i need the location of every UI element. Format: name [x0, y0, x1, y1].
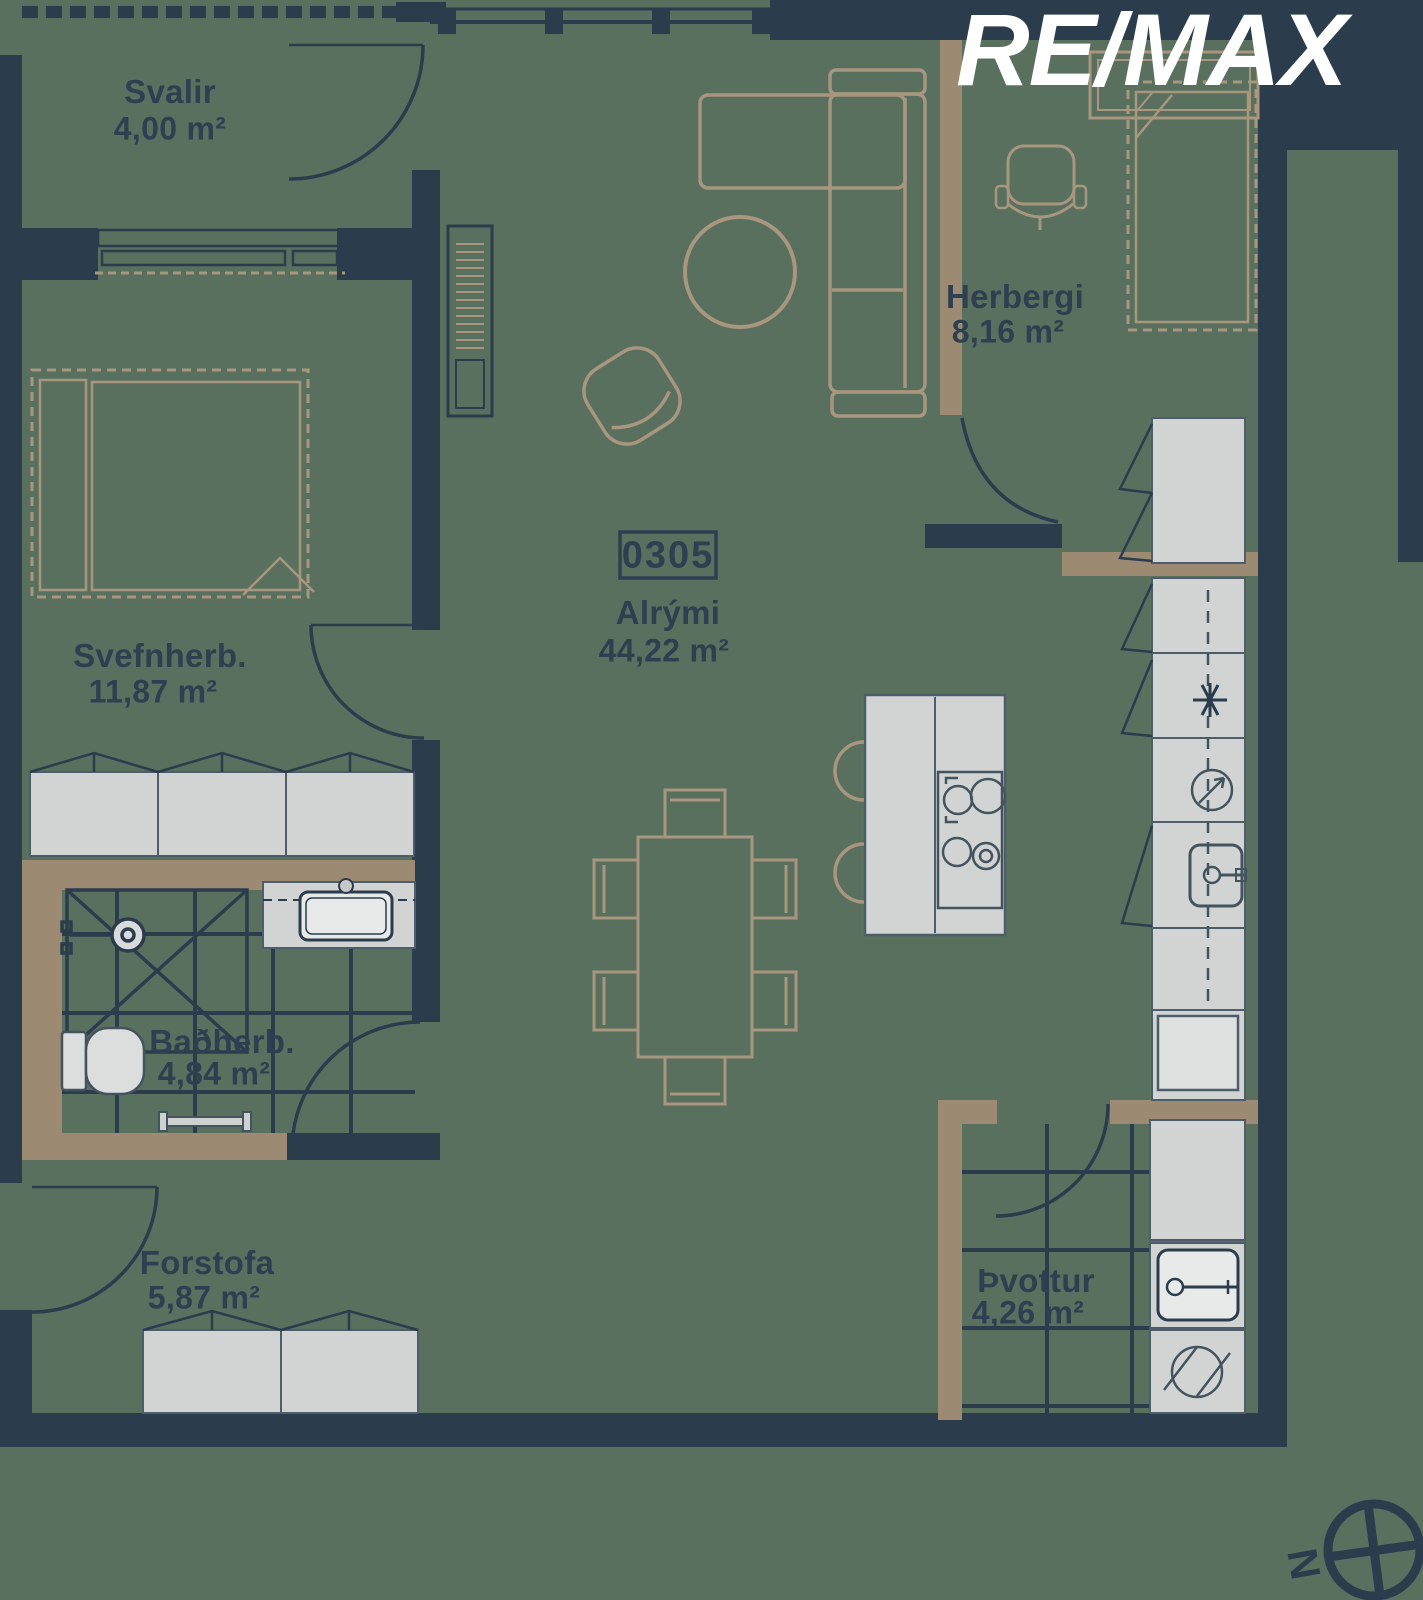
herbergi-door-arc [962, 418, 1058, 522]
room-area-forstofa: 5,87 m² [148, 1280, 260, 1317]
bedroom-wardrobe [30, 753, 414, 856]
right-inner-wall [1258, 40, 1287, 1447]
living-area [448, 70, 925, 1104]
towel-bar-icon [159, 1112, 251, 1131]
compass-north-label: N [1278, 1545, 1330, 1583]
room-label-svalir: Svalir [124, 73, 216, 111]
bottom-wall [22, 1413, 1287, 1447]
kitchen [835, 418, 1246, 1100]
dining-table-icon [594, 790, 796, 1104]
herbergi-stub-wall [925, 524, 1062, 548]
bedroom-living-wall [412, 170, 440, 630]
room-area-badherb: 4,84 m² [158, 1056, 270, 1093]
armchair-icon [574, 338, 690, 454]
left-wall [0, 55, 22, 1183]
bathroom-left-wall [22, 860, 62, 1160]
room-label-forstofa: Forstofa [140, 1244, 274, 1282]
room-label-svefnherb: Svefnherb. [73, 637, 247, 675]
room-area-thvottur: 4,26 m² [972, 1295, 1084, 1332]
bedroom-window [98, 230, 340, 246]
laundry-sink-icon [1150, 1243, 1245, 1328]
floor-plan-svg: N [0, 0, 1423, 1600]
faucet-icon [339, 879, 353, 893]
dishwasher-icon [1158, 1016, 1238, 1090]
room-area-alrymi: 44,22 m² [599, 633, 729, 670]
unit-number-label: 0305 [622, 535, 715, 578]
forstofa-room [143, 1311, 418, 1413]
coffee-table-icon [685, 217, 795, 327]
bathroom-door-arc [292, 1022, 420, 1150]
sink-icon [300, 892, 392, 940]
cabinet-door-swings [1120, 424, 1152, 926]
bathroom-vanity [263, 879, 415, 948]
bar-stools-icon [835, 742, 864, 902]
compass-icon: N [1278, 1504, 1423, 1596]
room-label-alrymi: Alrými [616, 594, 721, 632]
office-chair-icon [996, 146, 1086, 230]
right-outer-wall [1398, 150, 1423, 562]
kitchen-island [835, 695, 1005, 935]
laundry-cabinet [1150, 1120, 1245, 1240]
toilet-icon [62, 1028, 144, 1094]
room-area-herbergi: 8,16 m² [952, 314, 1064, 351]
hanger-rail-icon [30, 753, 414, 772]
room-area-svefnherb: 11,87 m² [89, 674, 218, 711]
tv-bench-icon [448, 226, 492, 416]
laundry-left-wall [938, 1100, 962, 1420]
bathroom [62, 879, 415, 1133]
remax-logo: RE/MAX [956, 0, 1347, 109]
floor-plan: N RE/MAX 0305 Svalir 4,00 m² Svefnherb. … [0, 0, 1423, 1600]
bathroom-bottom-wall [62, 1133, 287, 1160]
tall-cabinet [1152, 418, 1245, 563]
bedroom [30, 370, 414, 856]
room-label-herbergi: Herbergi [946, 278, 1084, 316]
washing-machine-icon [1150, 1330, 1245, 1413]
bedroom-door-arc [311, 625, 424, 738]
sofa-icon [700, 70, 925, 416]
balcony-door-arc [289, 45, 423, 179]
kitchen-cabinets [1120, 418, 1246, 1100]
laundry-door-arc [996, 1104, 1108, 1216]
double-bed-icon [32, 370, 314, 597]
entrance-door-arc [32, 1187, 157, 1312]
room-area-svalir: 4,00 m² [114, 111, 226, 148]
